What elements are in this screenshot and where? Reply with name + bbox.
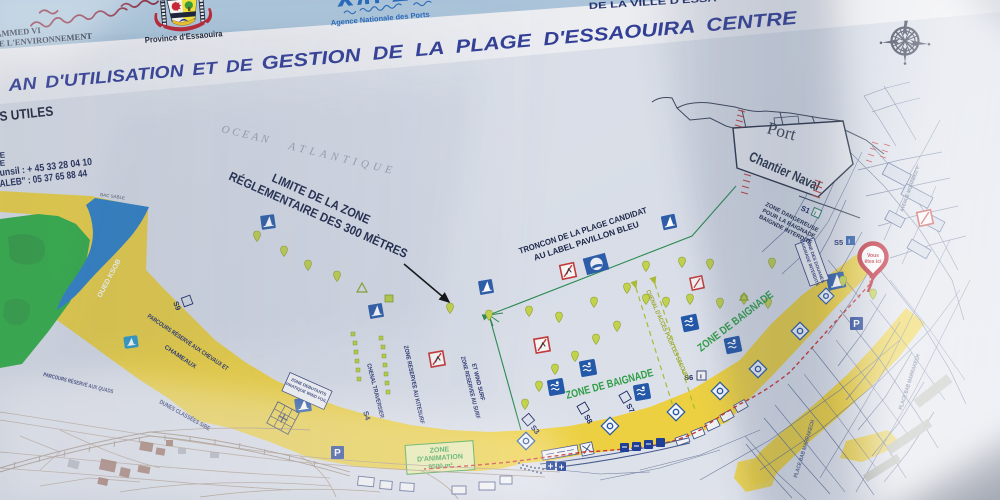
svg-text:i: i	[700, 374, 702, 381]
